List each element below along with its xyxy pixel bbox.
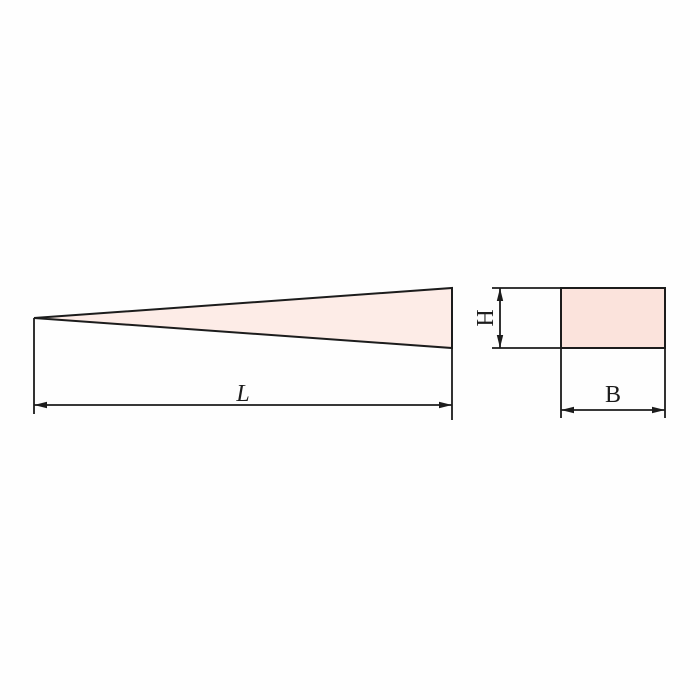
side-view: L [34,288,452,420]
length-arrow-left-icon [34,402,47,408]
cross-section-rect [561,288,665,348]
end-view: H B [473,288,665,418]
width-arrow-right-icon [652,407,665,413]
width-label: B [605,382,621,408]
height-label: H [473,309,499,326]
height-arrow-up-icon [497,288,503,301]
length-label: L [235,381,249,407]
height-arrow-down-icon [497,335,503,348]
drawing-canvas: L H B [0,0,700,700]
width-arrow-left-icon [561,407,574,413]
wedge-profile [34,288,452,348]
wedge-technical-drawing: L H B [0,0,700,700]
length-arrow-right-icon [439,402,452,408]
